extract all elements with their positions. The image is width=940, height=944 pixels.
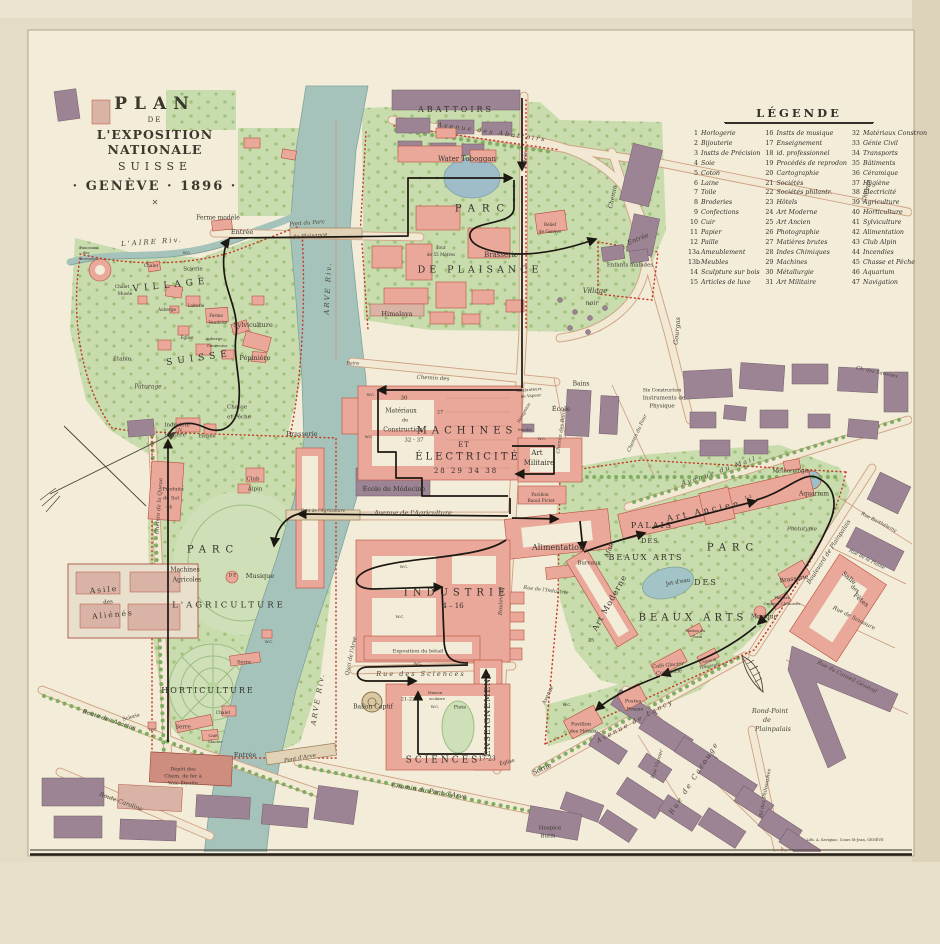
map-label-hospice: Hospice [539,826,562,832]
legend-item-label: Alimentation [863,228,904,238]
map-label-enseignement: ENSEIGNEMENT [483,672,492,757]
legend-item-number: 19 [763,159,773,169]
legend-item-37: 37Hygiène [850,179,927,189]
legend-item-number: 6 [688,179,698,189]
legend-title: LÉGENDE [724,106,874,123]
map-label-eglise: Église [180,335,194,340]
map-label-pont-de-l-agriculture: Pont de l'Agriculture [300,508,346,513]
map-label-4-16: 4 – 16 [442,602,464,610]
map-label-chasse: Chasse [227,405,247,411]
legend-item-number: 11 [688,228,698,238]
map-label-entree: Entrée [234,751,256,759]
map-label-rond-point: Rond-Point [751,707,789,715]
legend-item-number: 24 [763,208,773,218]
map-label-l-agriculture: L'AGRICULTURE [172,601,286,611]
map-label-station-du: Station du [685,628,705,633]
map-label-de: de [763,716,771,724]
map-label-auberge: Auberge [204,336,223,341]
map-label-du-sol: du Sol [163,496,179,502]
legend-item-number: 26 [763,228,773,238]
legend-item-13b: 13bMeubles [688,258,760,268]
legend-item-number: 36 [850,169,860,179]
map-title-geneve: · GENÈVE · 1896 · [68,179,242,194]
legend-item-34: 34Transports [850,149,927,159]
map-label-art: Art [530,449,542,457]
legend-item-label: Transports [863,149,898,159]
legend-item-label: Meubles [701,258,728,268]
legend-item-number: 13b [688,258,698,268]
legend-column-3: 32Matériaux Constron33Génie Civil34Trans… [850,129,927,288]
legend-item-40: 40Horticulture [850,208,927,218]
map-label-musee: Musée [118,292,133,297]
map-label-chem-de-fer-a: Chem. de fer à [164,773,201,780]
map-label-44: 44 [166,505,172,511]
legend-item-43: 43Club Alpin [850,238,927,248]
legend-item-label: Enseignement [776,139,822,149]
map-label-n: N [177,428,183,434]
legend-item-30: 30Métallurgie [763,268,847,278]
legend-item-17: 17Enseignement [763,139,847,149]
legend-item-label: Confections [701,208,739,218]
legend-item-label: Cartographie [776,169,819,179]
map-label-enfants-malades: Enfants malades [607,263,654,269]
legend-item-label: Art Moderne [776,208,817,218]
legend-item-number: 13a [688,248,698,258]
legend-item-number: 18 [763,149,773,159]
legend-item-label: Chasse et Pêche [863,258,915,268]
legend-item-label: Céramique [863,169,898,179]
map-label-beaux-arts: BEAUX ARTS [639,613,748,624]
legend-item-20: 20Cartographie [763,169,847,179]
legend-item-label: Ameublement [701,248,745,258]
map-label-exposition-du-betail: Exposition du bétail [393,648,444,655]
map-label-des: des [83,250,90,255]
map-label-postes: Postes [625,699,642,705]
map-label-sciences: SCIENCES [406,756,481,766]
map-label-entree: Entrée [521,151,529,170]
legend-item-number: 47 [850,278,860,288]
legend-item-number: 40 [850,208,860,218]
legend-item-label: Hygiène [863,179,890,189]
legend-item-label: Bijouterie [701,139,732,149]
legend-item-number: 2 [688,139,698,149]
legend-item-label: Indes Chimiques [776,248,829,258]
legend-item-31: 31Art Militaire [763,278,847,288]
legend-item-label: Génie Civil [863,139,898,149]
map-label-28-29-34-38: 28 29 34 38 [434,467,498,475]
map-label-des: DES [641,537,658,545]
map-label-water-toboggan: Water Toboggan [438,155,496,163]
map-label-auberge: Auberge [157,307,177,312]
legend-item-label: Hôtels [776,198,797,208]
map-label-meteorologie: Météorologie [772,468,809,475]
legend-item-number: 3 [688,149,698,159]
map-label-pepiniere: Pépinière [239,354,270,362]
map-label-w-c: W.C. [400,564,409,569]
legend-item-label: Photographie [776,228,819,238]
map-label-club: Club [246,477,260,483]
map-label-physique: Physique [649,404,674,410]
legend-item-number: 12 [688,238,698,248]
map-label-piste: Piste [454,705,467,711]
legend-item-number: 21 [763,179,773,189]
map-label-tram: Tram [692,634,703,639]
map-label-butin: Butin [540,834,556,840]
map-label-lith-a-savignac-cours-st-jean-geneve: Lith. A. Savignac, Cours St-Jean, GENÈVE [806,837,884,842]
map-label-des: DES [694,578,718,587]
legend-item-number: 29 [763,258,773,268]
map-label-ste-construction: Ste Construction [643,388,682,394]
legend-item-10: 10Cuir [688,218,760,228]
map-label-machines: MACHINES [417,426,518,437]
map-label-machines: Machines [170,567,199,574]
legend-item-19: 19Procédés de reprodon [763,159,847,169]
map-label-brasserie: Brasserie [484,251,518,259]
map-label-w-c: W.C. [563,702,572,707]
legend-item-1: 1Horlogerie [688,129,760,139]
map-label-w-c: W.C. [396,614,405,619]
map-label-chalet: Chalet [216,711,231,716]
legend-item-18: 18id. professionnel [763,149,847,159]
legend-item-13a: 13aAmeublement [688,248,760,258]
map-label-laitiere: Laitière [164,432,186,439]
legend-item-number: 25 [763,218,773,228]
legend-item-32: 32Matériaux Constron [850,129,927,139]
legend-item-label: Articles de luxe [701,278,751,288]
legend-item-number: 43 [850,238,860,248]
map-label-27: 27 [437,410,443,416]
map-label-electricite: ÉLECTRICITÉ [415,451,521,463]
scanned-map-page: { "title_block": { "line1": "PLAN", "lin… [0,0,940,940]
map-label-aquarium: Aquarium [798,491,829,498]
legend-item-number: 5 [688,169,698,179]
legend-item-number: 30 [763,268,773,278]
map-label-glacier: Glacier [208,739,223,744]
map-label-noir: noir [585,299,599,307]
legend-item-45: 45Chasse et Pêche [850,258,927,268]
map-label-25: 25 [588,638,594,644]
map-label-produits: Produits [162,487,184,493]
title-ornament: ✕ [68,198,242,207]
legend-item-8: 8Broderies [688,198,760,208]
legend-item-label: Cuir [701,218,715,228]
map-label-parc: PARC [455,204,511,215]
legend-item-9: 9Confections [688,208,760,218]
legend-item-number: 38 [850,188,860,198]
legend-item-number: 15 [688,278,698,288]
map-label-cafe: Café [208,733,218,738]
legend-item-label: Électricité [863,188,896,198]
map-label-entree: Entrée [198,433,215,440]
legend-item-number: 9 [688,208,698,218]
map-label-himalaya: Himalaya [381,310,412,318]
legend-item-label: Sociétés [776,179,803,189]
map-label-chalet: Chalet [144,264,159,269]
legend-item-36: 36Céramique [850,169,927,179]
map-label-materiaux: Matériaux [385,408,417,415]
legend-item-number: 7 [688,188,698,198]
map-label-ombres-chinoises: Ombres Chinoises [764,601,801,606]
map-label-industrie: INDUSTRIE [404,588,510,599]
legend-item-label: Matières brutes [776,238,827,248]
map-label-raoul-pictet: Raoul Pictet [527,499,554,504]
legend-item-3: 3Instts de Précision [688,149,760,159]
map-label-ferme: Ferme [209,313,223,318]
legend-item-number: 44 [850,248,860,258]
legend-panel: LÉGENDE 1Horlogerie2Bijouterie3Instts de… [688,106,910,288]
legend-item-15: 15Articles de luxe [688,278,760,288]
legend-item-27: 27Matières brutes [763,238,847,248]
legend-item-7: 7Toile [688,188,760,198]
legend-item-number: 1 [688,129,698,139]
map-label-depot-des: Dépôt des [170,766,196,773]
legend-item-label: id. professionnel [776,149,829,159]
legend-item-number: 42 [850,228,860,238]
map-label-w-c: W.C. [365,434,374,439]
legend-item-label: Papier [701,228,722,238]
legend-item-5: 5Coton [688,169,760,179]
legend-item-label: Sociétés philantr. [776,188,832,198]
legend-item-label: Laine [701,179,719,189]
map-label-de-55-metres: de 55 Mètres [427,252,455,257]
map-label-musique: Musique [246,572,275,580]
legend-item-number: 23 [763,198,773,208]
map-label-instruments-de: Instruments de [643,396,686,402]
legend-item-label: Aquarium [863,268,894,278]
legend-item-label: Sylviculture [863,218,901,228]
legend-item-number: 14 [688,268,698,278]
legend-item-14: 14Sculpture sur bois [688,268,760,278]
legend-item-4: 4Soie [688,159,760,169]
map-label-et-peche: et Pêche [227,414,251,421]
legend-item-label: Soie [701,159,715,169]
legend-item-number: 16 [763,129,773,139]
map-label-chalet: Chalet [115,285,130,290]
map-label-parc: PARC [707,543,759,554]
map-label-paturage: Pâturage [133,384,162,391]
map-label-avenue-de-l-agriculture: Avenue de l'Agriculture [373,509,452,517]
legend-item-number: 45 [850,258,860,268]
map-title-de: DE [68,116,242,124]
map-label-brasserie: Brasserie [286,430,317,438]
map-label-w-c: W.C. [367,392,376,397]
legend-item-label: Instts de Précision [701,149,760,159]
map-label-beaux-arts: BEAUX ARTS [609,553,684,562]
map-label-de: DE [229,573,238,579]
map-title-exposition: L'EXPOSITION NATIONALE [68,127,242,157]
map-label-ballon-captif: Ballon Captif [353,704,394,711]
map-label-30: 30 [401,396,408,402]
legend-item-29: 29Machines [763,258,847,268]
map-label-ferme-modele: Ferme modèle [196,215,240,222]
legend-column-2: 16Instts de musique17Enseignement18id. p… [763,129,847,288]
legend-item-label: Incendies [863,248,894,258]
map-label-horticulture: HORTICULTURE [161,686,254,695]
legend-item-label: Matériaux Constron [863,129,927,139]
legend-item-46: 46Aquarium [850,268,927,278]
legend-item-number: 4 [688,159,698,169]
map-label-militaire: Militaire [524,459,555,467]
legend-item-label: Coton [701,169,720,179]
legend-item-number: 32 [850,129,860,139]
legend-item-label: Métallurgie [776,268,813,278]
legend-item-label: Paille [701,238,718,248]
legend-item-39: 39Agriculture [850,198,927,208]
legend-item-11: 11Papier [688,228,760,238]
legend-item-number: 22 [763,188,773,198]
legend-item-number: 31 [763,278,773,288]
map-label-pavillon: Pavillon [531,493,549,498]
map-label-des: des [103,599,113,606]
map-label-phototypie: Phototypie [786,527,818,533]
legend-item-35: 35Bâtiments [850,159,927,169]
map-label-w-c: W.C. [265,639,274,644]
legend-item-label: Toile [701,188,716,198]
legend-item-label: Art Ancien [776,218,810,228]
legend-item-label: Broderies [701,198,732,208]
map-label-de-plaisance: DE PLAISANCE [418,265,543,276]
map-label-w-c: W.C. [183,250,192,255]
legend-item-number: 28 [763,248,773,258]
legend-item-6: 6Laine [688,179,760,189]
legend-item-number: 17 [763,139,773,149]
map-label-moulin: Moulin [518,427,533,432]
legend-item-26: 26Photographie [763,228,847,238]
map-label-parc: PARC [187,545,239,556]
title-cartouche: PLAN DE L'EXPOSITION NATIONALE SUISSE · … [68,94,242,207]
map-label-w-c: W.C. [431,704,440,709]
map-label-et: ET [458,441,470,449]
legend-columns: 1Horlogerie2Bijouterie3Instts de Précisi… [688,129,910,288]
map-label-maison: Maison [428,690,443,695]
map-label-bains: Bains [573,381,590,388]
legend-item-number: 34 [850,149,860,159]
map-label-ecole-de-medecine: École de Médecine [363,484,426,493]
map-label-alimentation: Alimentation [531,543,584,552]
map-label-vaudoise: Vaudoise [207,320,228,325]
map-label-musique: Musique [751,614,778,621]
legend-item-number: 39 [850,198,860,208]
map-label-bains: Bains [346,361,360,367]
map-label-village: Village [583,287,607,295]
map-label-serre: Serre [175,725,191,731]
legend-item-number: 35 [850,159,860,169]
legend-item-label: Bâtiments [863,159,895,169]
legend-item-25: 25Art Ancien [763,218,847,228]
map-label-alpin: Alpin [247,487,263,493]
map-title: PLAN [68,94,242,114]
legend-item-16: 16Instts de musique [763,129,847,139]
legend-item-23: 23Hôtels [763,198,847,208]
map-label-plainpalais: Plainpalais [754,725,792,733]
map-label-scolaire: scolaire [429,696,446,701]
map-label-des-hotels: des Hôtels [570,728,597,735]
map-label-boulevard: Boulevard [498,586,505,616]
map-label-presse: Presse [627,707,644,713]
map-label-etable: Étable [113,355,131,363]
legend-item-24: 24Art Moderne [763,208,847,218]
legend-item-44: 44Incendies [850,248,927,258]
map-label-laiterie: Laiterie [188,303,205,308]
map-label-serre: Serre [237,660,251,666]
legend-item-number: 27 [763,238,773,248]
map-label-scierie: Scierie [183,267,203,273]
legend-item-label: Horticulture [863,208,903,218]
legend-item-42: 42Alimentation [850,228,927,238]
map-label-genevoise: Genevoise [207,343,229,348]
map-title-suisse: SUISSE [68,160,242,173]
legend-item-12: 12Paille [688,238,760,248]
legend-item-number: 46 [850,268,860,278]
map-label-de: de [402,418,408,424]
legend-item-label: Art Militaire [776,278,816,288]
legend-item-label: Instts de musique [776,129,833,139]
legend-item-label: Navigation [863,278,898,288]
map-label-voie-etroite: Voie Étroite [167,779,198,787]
map-label-w-c: W.C. [538,436,547,441]
map-stage: ABATTOIRSPARCDE PLAISANCEVILLAGESUISSEPA… [0,0,940,940]
legend-item-label: Club Alpin [863,238,897,248]
legend-item-number: 20 [763,169,773,179]
map-label-rue-des-sciences: Rue des Sciences [375,670,465,678]
legend-item-47: 47Navigation [850,278,927,288]
legend-item-label: Machines [776,258,807,268]
map-label-32-37: 32 - 37 [404,438,424,444]
map-label-w-c: W.C. [414,661,423,666]
legend-item-33: 33Génie Civil [850,139,927,149]
legend-item-number: 10 [688,218,698,228]
legend-item-label: Sculpture sur bois [701,268,760,278]
legend-item-label: Horlogerie [701,129,736,139]
legend-item-22: 22Sociétés philantr. [763,188,847,198]
legend-item-28: 28Indes Chimiques [763,248,847,258]
legend-item-41: 41Sylviculture [850,218,927,228]
map-label-entree: Entrée [231,228,253,236]
legend-item-label: Procédés de reprodon [776,159,847,169]
legend-item-21: 21Sociétés [763,179,847,189]
legend-item-38: 38Électricité [850,188,927,198]
map-label-abattoirs: ABATTOIRS [417,105,494,114]
map-label-21-22: 21-22 [401,697,415,703]
map-label-pavillon: Pavillon [571,722,592,728]
map-label-relief: Relief [544,222,557,227]
legend-item-number: 33 [850,139,860,149]
map-label-agricoles: Agricoles [172,577,201,584]
map-label-construction: Construction [383,427,423,434]
map-label-de-geneve: de Genève [539,229,562,234]
legend-item-number: 37 [850,179,860,189]
legend-item-2: 2Bijouterie [688,139,760,149]
legend-item-number: 41 [850,218,860,228]
legend-column-1: 1Horlogerie2Bijouterie3Instts de Précisi… [688,129,760,288]
map-label-bureaux: Bureaux [577,561,601,567]
legend-item-number: 8 [688,198,698,208]
legend-item-label: Agriculture [863,198,900,208]
map-label-tour: Tour [436,245,446,250]
map-label-theatre: Théâtre [774,595,791,600]
map-label-sylviculture: Sylviculture [233,321,273,329]
map-label-w-c: W.C. [149,727,158,732]
map-label-bernoises: Bernoises [80,256,99,261]
